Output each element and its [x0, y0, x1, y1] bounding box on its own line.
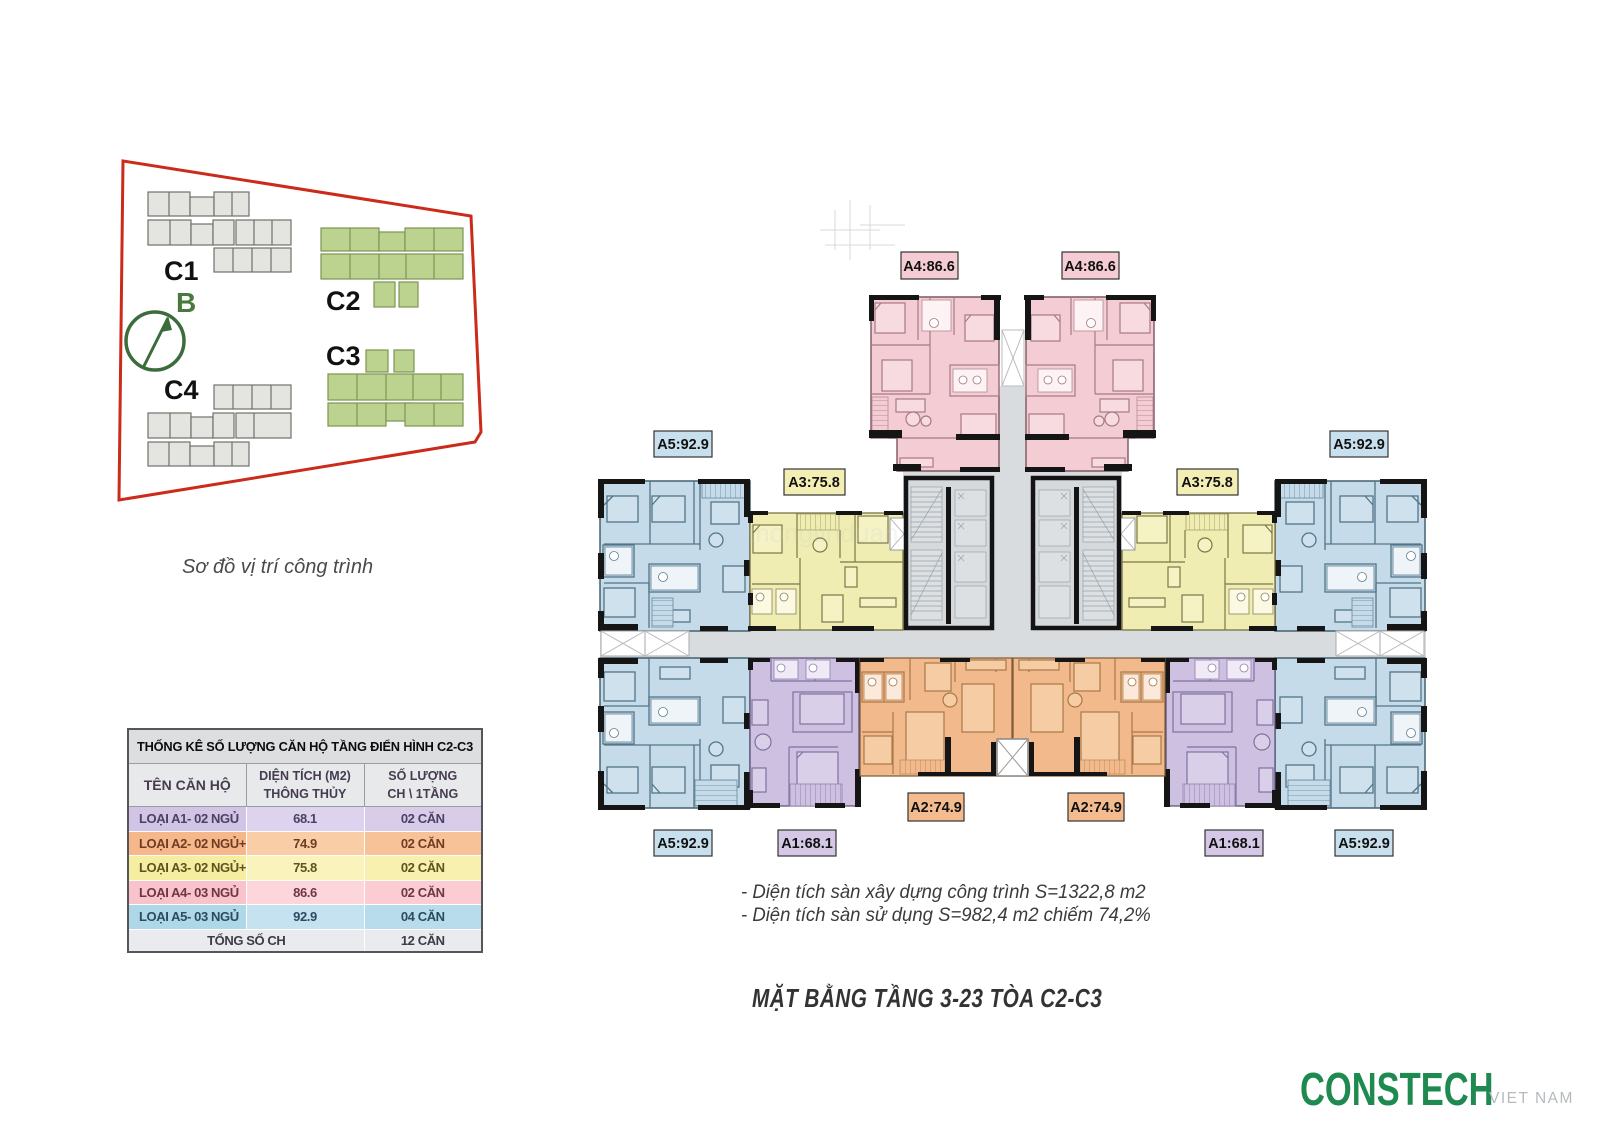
svg-text:thongtinduan: thongtinduan	[748, 518, 898, 548]
svg-text:A1:68.1: A1:68.1	[781, 836, 833, 852]
svg-text:A5:92.9: A5:92.9	[657, 437, 709, 453]
svg-text:A1:68.1: A1:68.1	[1208, 836, 1260, 852]
svg-text:A4:86.6: A4:86.6	[1064, 259, 1116, 275]
svg-text:A5:92.9: A5:92.9	[657, 836, 709, 852]
svg-text:C4: C4	[164, 375, 199, 405]
svg-text:B: B	[176, 287, 196, 318]
svg-text:A2:74.9: A2:74.9	[1070, 800, 1122, 816]
svg-text:A3:75.8: A3:75.8	[1181, 475, 1233, 491]
svg-text:A2:74.9: A2:74.9	[910, 800, 962, 816]
svg-text:A5:92.9: A5:92.9	[1338, 836, 1390, 852]
svg-text:C3: C3	[326, 341, 361, 371]
svg-text:C2: C2	[326, 286, 361, 316]
svg-text:C1: C1	[164, 256, 199, 286]
svg-text:A4:86.6: A4:86.6	[903, 259, 955, 275]
svg-text:A3:75.8: A3:75.8	[788, 475, 840, 491]
svg-text:A5:92.9: A5:92.9	[1333, 437, 1385, 453]
